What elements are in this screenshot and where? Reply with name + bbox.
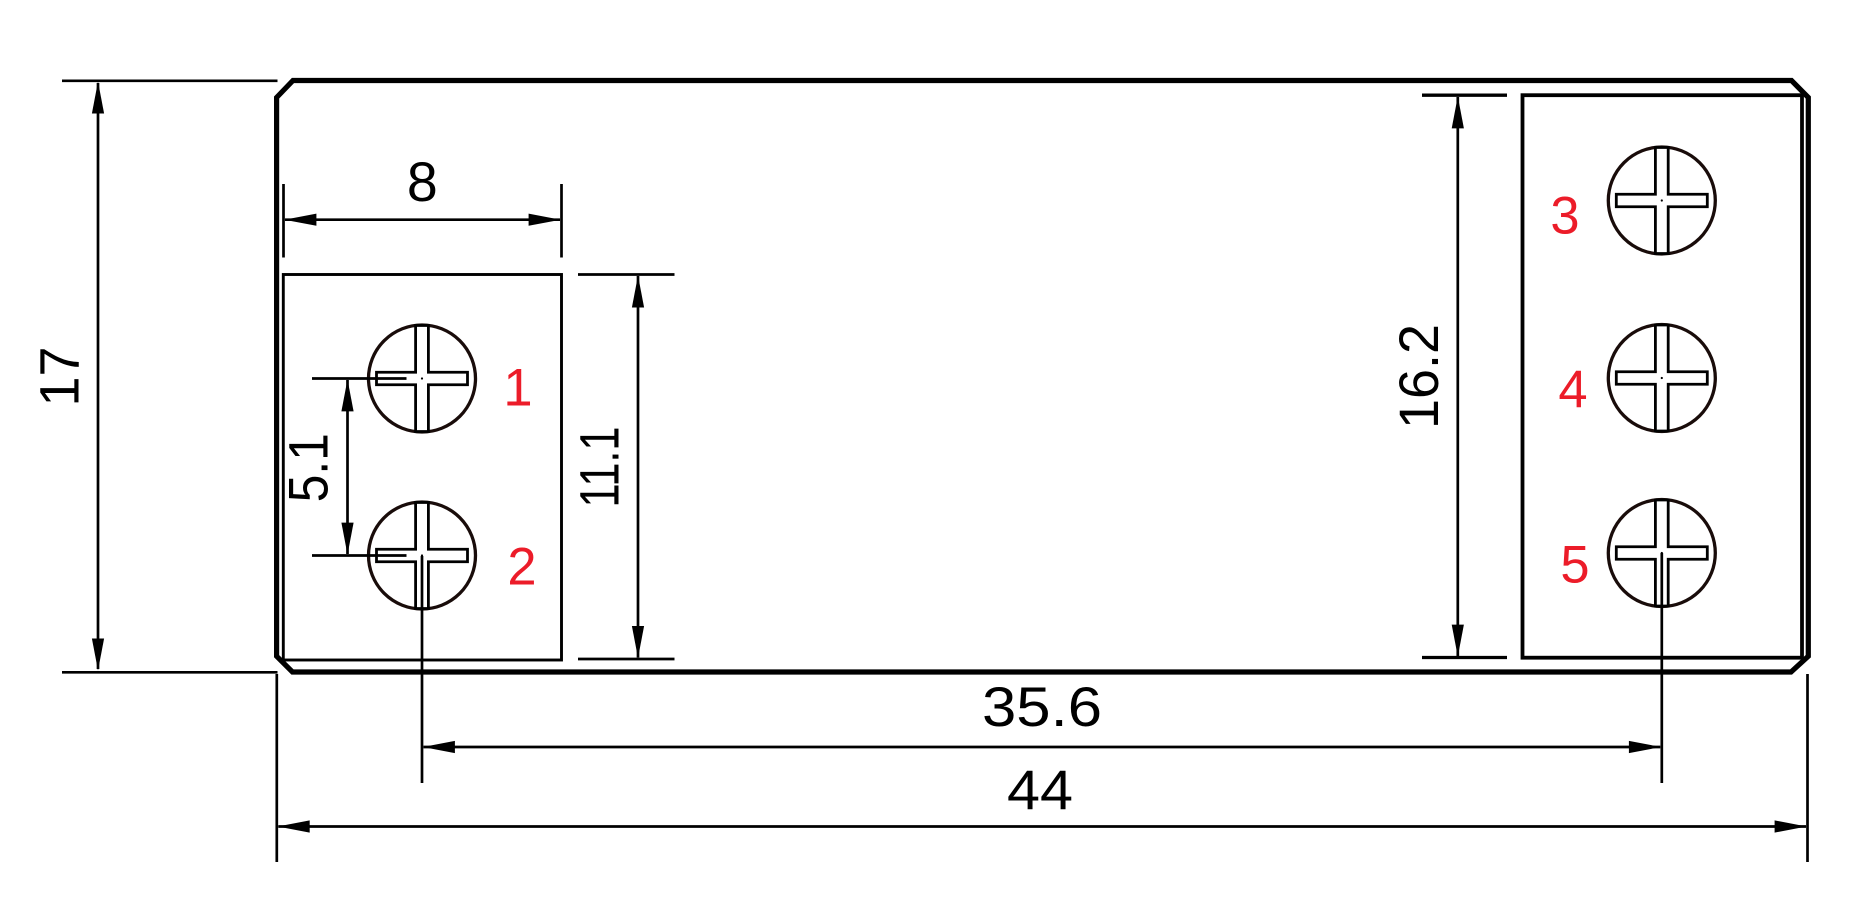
svg-text:2: 2 xyxy=(507,538,536,597)
svg-text:17: 17 xyxy=(29,347,91,407)
svg-text:4: 4 xyxy=(1558,361,1587,420)
svg-text:3: 3 xyxy=(1550,187,1579,246)
svg-text:11.1: 11.1 xyxy=(569,427,631,508)
svg-text:5: 5 xyxy=(1560,536,1589,595)
svg-text:8: 8 xyxy=(407,151,438,213)
svg-text:44: 44 xyxy=(1007,759,1073,821)
svg-text:1: 1 xyxy=(503,359,532,418)
svg-text:16.2: 16.2 xyxy=(1388,324,1450,429)
svg-text:35.6: 35.6 xyxy=(982,676,1102,738)
svg-text:5.1: 5.1 xyxy=(278,433,340,502)
